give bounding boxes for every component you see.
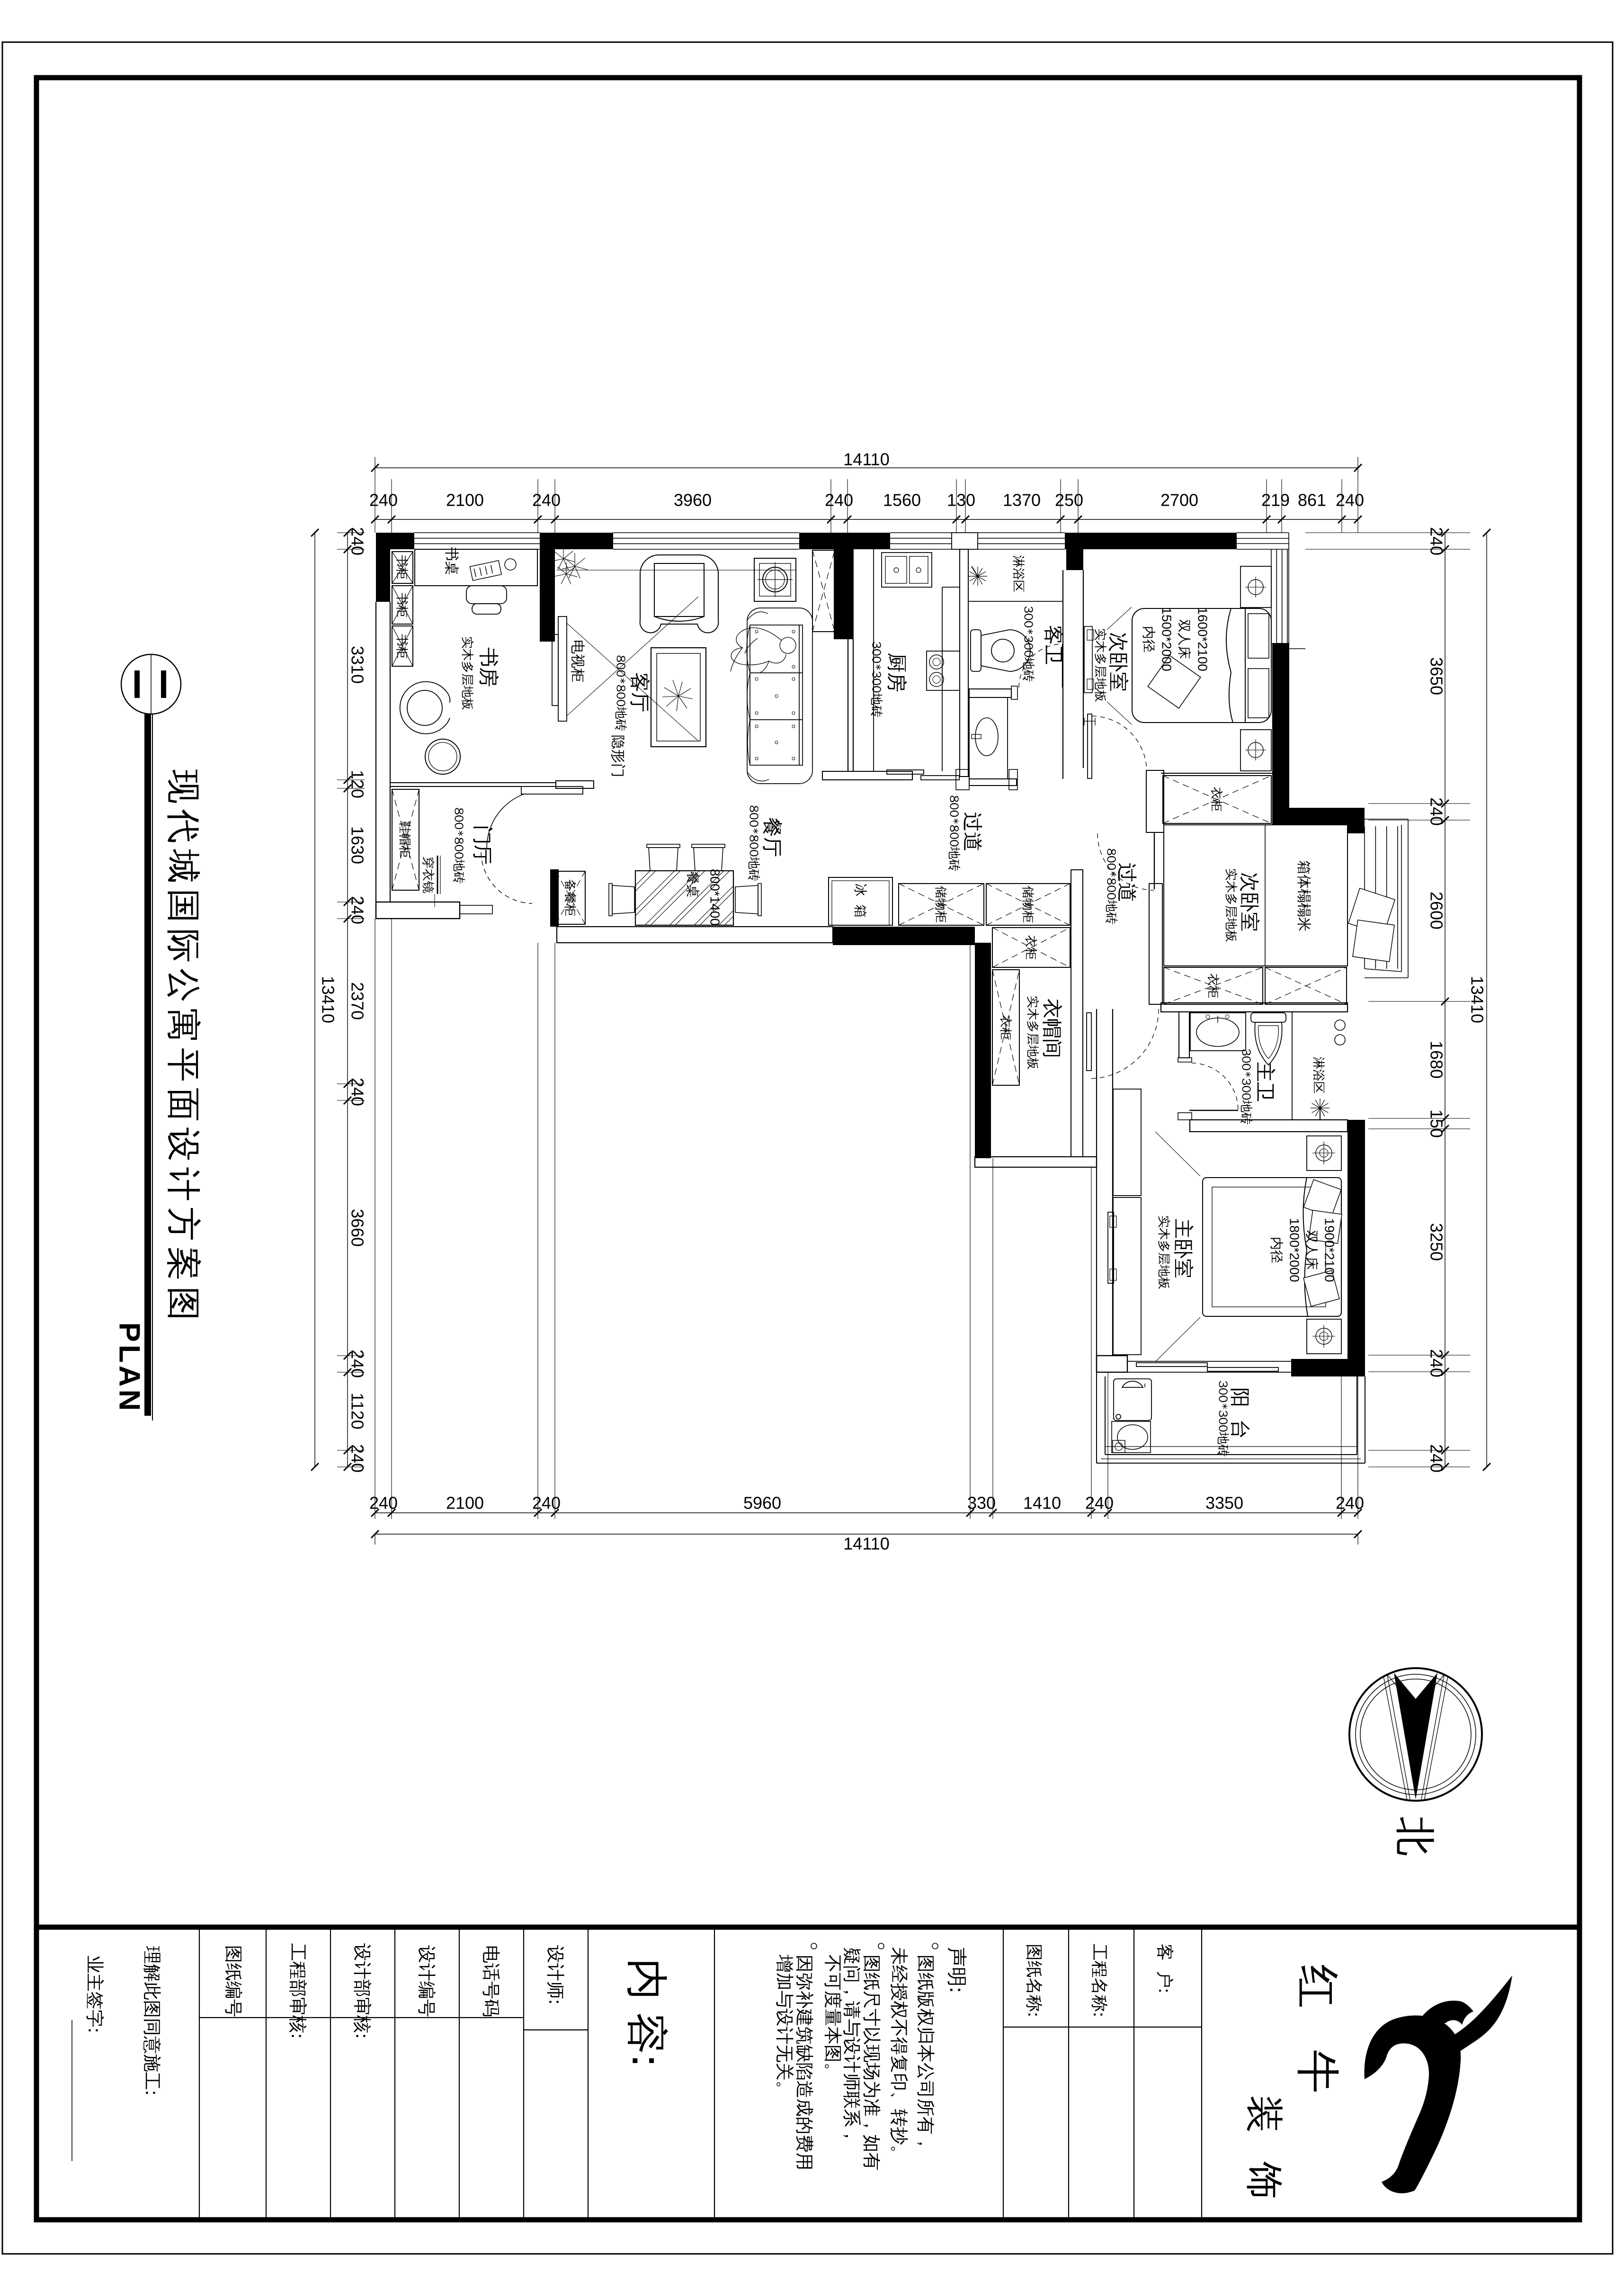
svg-text:3310: 3310: [348, 646, 367, 684]
svg-text:240: 240: [825, 491, 853, 510]
svg-text:1500*2000: 1500*2000: [1160, 607, 1174, 671]
svg-text:3650: 3650: [1427, 657, 1446, 695]
svg-text:13410: 13410: [1468, 976, 1487, 1023]
svg-text:2370: 2370: [348, 982, 367, 1020]
svg-text:800*1400: 800*1400: [708, 869, 723, 926]
svg-text:3350: 3350: [1205, 1493, 1243, 1513]
svg-text:3250: 3250: [1427, 1223, 1446, 1261]
svg-text:1410: 1410: [1023, 1493, 1061, 1513]
svg-text:3660: 3660: [348, 1209, 367, 1247]
svg-text:240: 240: [348, 1444, 367, 1473]
svg-text:1800*2000: 1800*2000: [1287, 1218, 1302, 1282]
svg-text:13410: 13410: [319, 976, 338, 1023]
svg-text:3960: 3960: [674, 491, 712, 510]
svg-text:2600: 2600: [1427, 892, 1446, 929]
svg-text:330: 330: [967, 1493, 996, 1513]
svg-text:240: 240: [369, 491, 398, 510]
svg-text:240: 240: [1427, 797, 1446, 826]
svg-text:5960: 5960: [743, 1493, 781, 1513]
svg-text:240: 240: [348, 1349, 367, 1378]
svg-text:150: 150: [1427, 1109, 1446, 1138]
svg-text:240: 240: [1085, 1493, 1114, 1513]
svg-text:240: 240: [1427, 527, 1446, 555]
svg-text:2700: 2700: [1160, 491, 1198, 510]
svg-text:240: 240: [532, 1493, 561, 1513]
svg-text:1560: 1560: [883, 491, 921, 510]
svg-text:240: 240: [1336, 491, 1364, 510]
svg-text:240: 240: [348, 896, 367, 924]
svg-text:240: 240: [369, 1493, 398, 1513]
svg-text:1630: 1630: [348, 826, 367, 864]
svg-text:130: 130: [947, 491, 975, 510]
svg-text:240: 240: [348, 1078, 367, 1106]
svg-text:250: 250: [1055, 491, 1083, 510]
svg-text:1370: 1370: [1003, 491, 1041, 510]
svg-text:1600*2100: 1600*2100: [1196, 607, 1210, 671]
svg-text:PLAN: PLAN: [113, 1322, 146, 1414]
svg-text:1120: 1120: [348, 1393, 367, 1429]
svg-text:1900*2100: 1900*2100: [1322, 1218, 1337, 1282]
svg-text:2100: 2100: [446, 491, 484, 510]
svg-text:240: 240: [1427, 1444, 1446, 1473]
svg-text:240: 240: [1336, 1493, 1364, 1513]
svg-text:219: 219: [1261, 491, 1290, 510]
svg-text:240: 240: [532, 491, 561, 510]
svg-text:1680: 1680: [1427, 1041, 1446, 1079]
svg-text:2100: 2100: [446, 1493, 484, 1513]
svg-text:14110: 14110: [843, 450, 889, 469]
svg-text:14110: 14110: [843, 1534, 889, 1554]
svg-text:861: 861: [1298, 491, 1326, 510]
svg-text:120: 120: [348, 770, 367, 798]
svg-text:240: 240: [1427, 1349, 1446, 1377]
svg-text:240: 240: [348, 527, 367, 555]
